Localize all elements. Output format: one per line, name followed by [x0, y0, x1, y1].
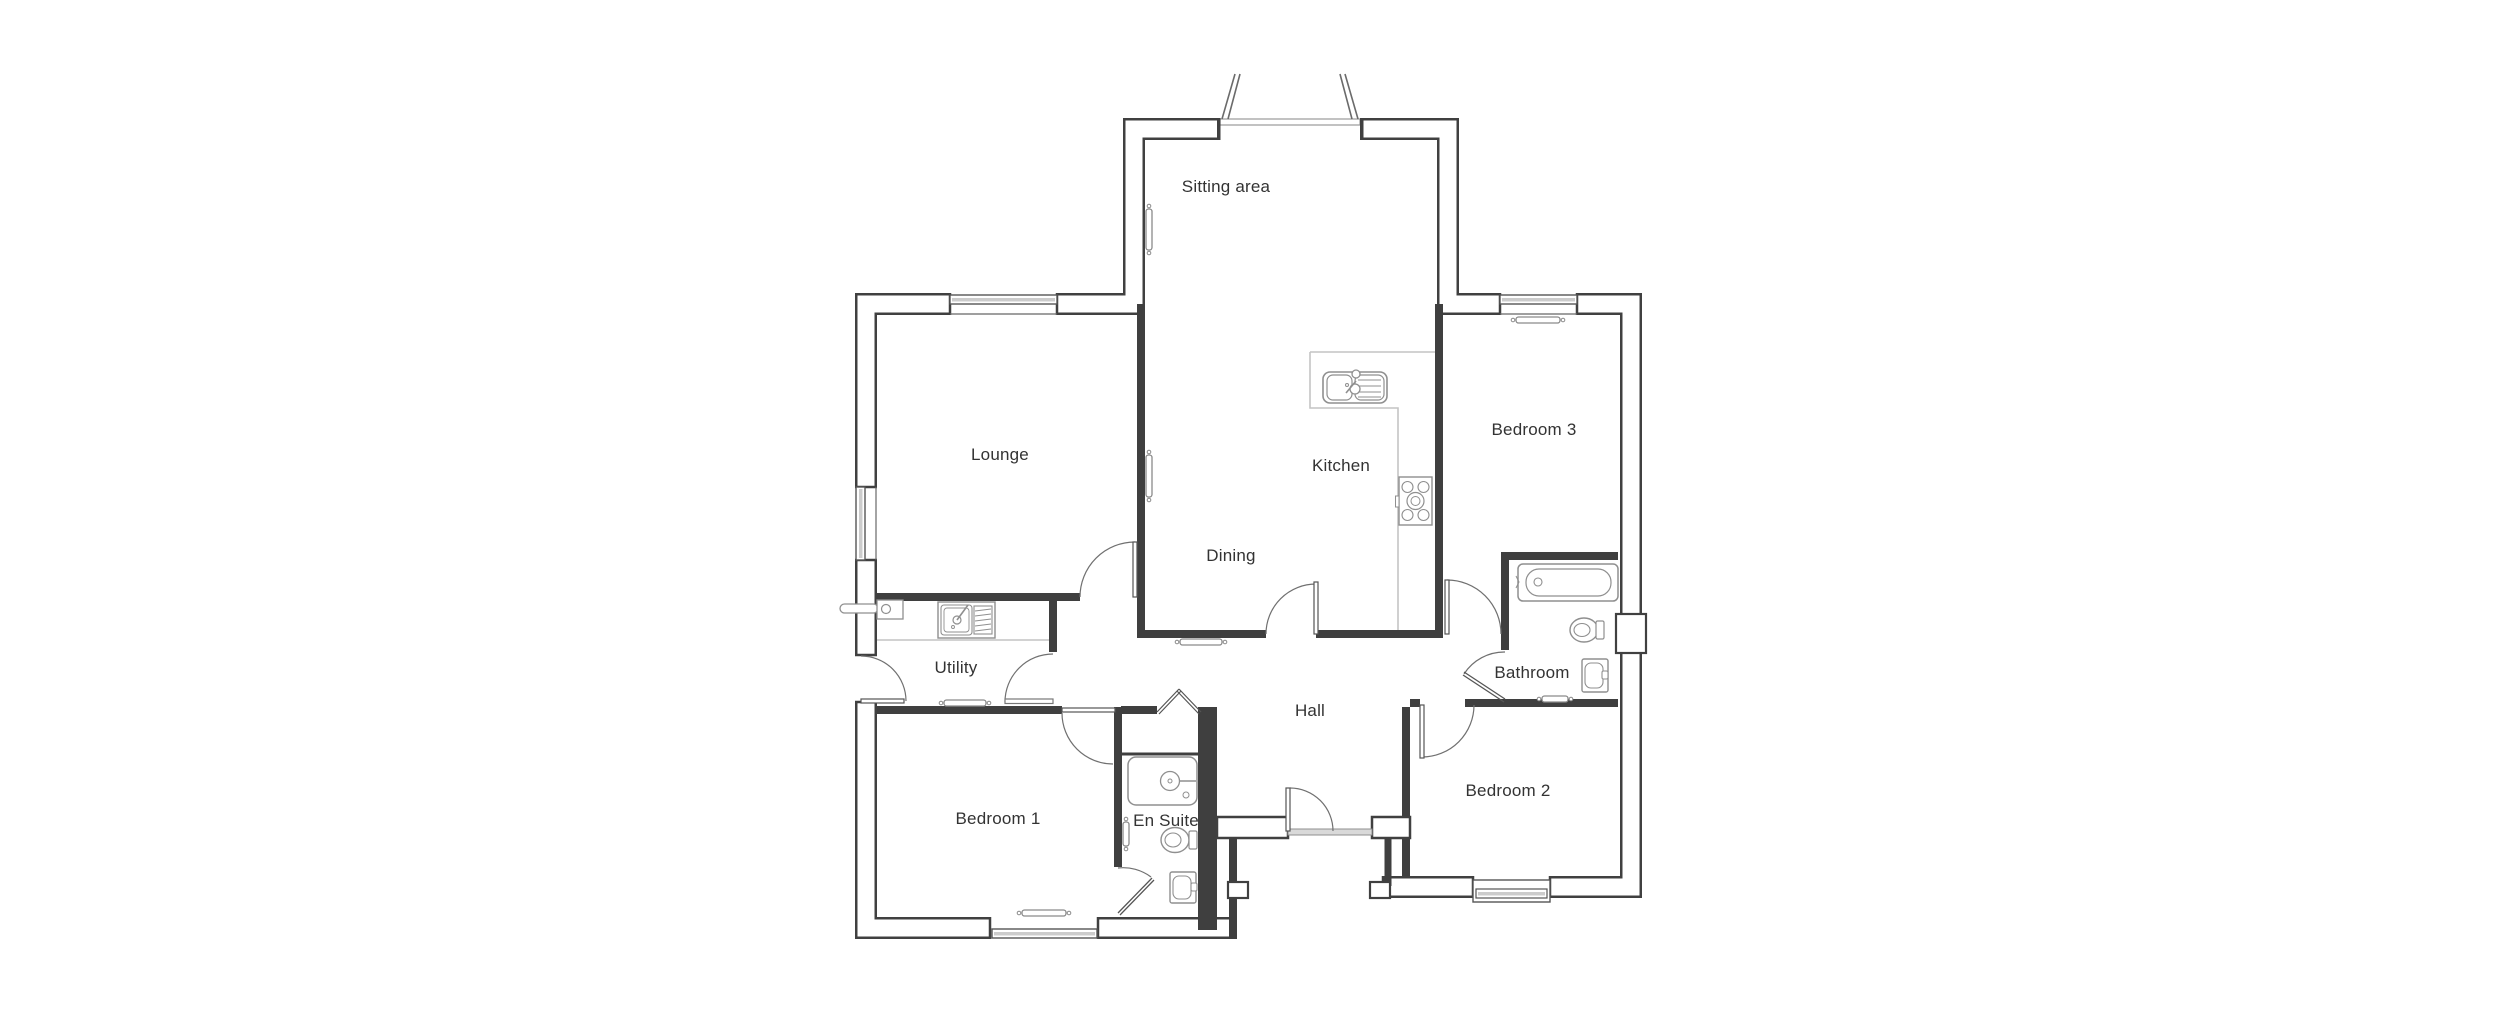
room-label-bedroom-2: Bedroom 2 — [1466, 781, 1551, 801]
floorplan-drawing — [0, 0, 2500, 1021]
bath-icon — [1516, 564, 1618, 601]
room-label-bedroom-3: Bedroom 3 — [1492, 420, 1577, 440]
ensuite-toilet-icon — [1161, 828, 1197, 853]
entrance-porch — [1217, 817, 1410, 939]
ensuite-door-icon — [1118, 868, 1154, 915]
bedroom3-window-icon — [1500, 295, 1577, 314]
bathroom-basin-icon — [1582, 659, 1608, 692]
sitting-area-radiator-icon — [1146, 204, 1152, 255]
bedroom1-window-icon — [992, 929, 1097, 938]
cupboard-bifold-door-icon — [1157, 689, 1201, 714]
lounge-window-icon — [950, 295, 1057, 314]
room-label-bedroom-1: Bedroom 1 — [956, 809, 1041, 829]
room-label-bathroom: Bathroom — [1494, 663, 1569, 683]
dining-radiator-icon — [1146, 450, 1152, 502]
utility-sink-icon — [938, 602, 995, 638]
floorplan-canvas: Sitting area Lounge Kitchen Dining Bedro… — [0, 0, 2500, 1021]
utility-hall-door-icon — [1005, 654, 1053, 704]
bedroom3-door-icon — [1445, 580, 1501, 634]
bedroom1-radiator-icon — [1017, 910, 1071, 916]
room-label-hall: Hall — [1295, 701, 1325, 721]
bedroom2-window-icon — [1473, 880, 1550, 902]
front-door-threshold — [1288, 829, 1372, 835]
bathroom-toilet-icon — [1570, 618, 1604, 642]
ensuite-east-wall — [1198, 707, 1217, 930]
room-label-kitchen: Kitchen — [1312, 456, 1370, 476]
room-label-lounge: Lounge — [971, 445, 1029, 465]
bathroom-wall-pier — [1616, 614, 1646, 653]
shower-icon — [1128, 757, 1197, 805]
room-label-utility: Utility — [935, 658, 978, 678]
french-doors-icon — [1217, 74, 1364, 140]
room-label-en-suite: En Suite — [1133, 811, 1199, 831]
ensuite-radiator-icon — [1123, 817, 1129, 851]
lounge-door-icon — [1080, 542, 1137, 597]
bedroom3-radiator-icon — [1511, 317, 1565, 323]
hob-icon — [1396, 477, 1433, 525]
bedroom2-door-icon — [1420, 705, 1474, 758]
utility-side-door-icon — [861, 656, 906, 703]
front-door-icon — [1286, 788, 1333, 831]
hall-radiator-icon — [1175, 639, 1227, 645]
kitchen-door-icon — [1266, 582, 1318, 634]
utility-radiator-icon — [939, 700, 991, 706]
bathroom-radiator-icon — [1537, 696, 1573, 702]
lounge-side-window-icon — [856, 487, 876, 560]
ensuite-basin-icon — [1170, 872, 1197, 903]
room-label-dining: Dining — [1206, 546, 1255, 566]
kitchen-sink-icon — [1323, 370, 1387, 403]
room-label-sitting-area: Sitting area — [1182, 177, 1270, 197]
bedroom1-door-icon — [1062, 708, 1115, 764]
